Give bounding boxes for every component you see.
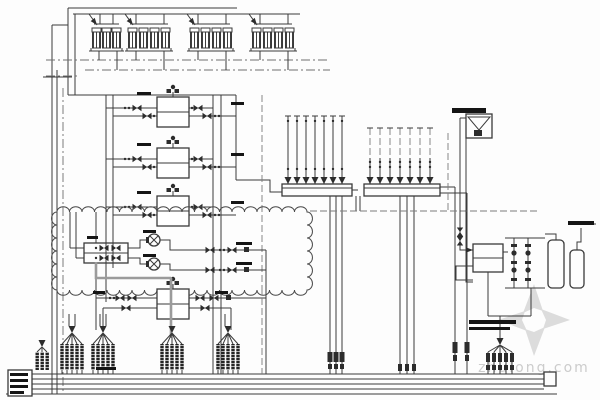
circulation-pumps: [146, 234, 196, 270]
chiller-1: [157, 85, 189, 127]
tank-1: [548, 240, 564, 288]
riser-bundle-3: [160, 326, 183, 374]
chiller-2: [157, 136, 189, 178]
return-manifold: [310, 128, 540, 374]
manifold-risers: [285, 116, 346, 184]
riser-bundle-1: [60, 326, 83, 374]
chiller-4-circuit: [96, 262, 266, 338]
chiller-3: [157, 184, 189, 226]
chilled-water-headers: [68, 95, 282, 374]
plate-heat-exchanger: [70, 240, 148, 264]
cooling-tower-group-3: [187, 14, 235, 70]
supply-manifold: [282, 116, 360, 374]
chiller-4: [157, 277, 189, 319]
hvac-schematic: HVAC chilled / condenser water system sc…: [0, 0, 600, 400]
chillers: [106, 85, 236, 226]
expansion-tank-assembly: [457, 114, 492, 282]
bottom-distribution: [6, 288, 557, 396]
pump-icon: [148, 258, 160, 270]
riser-bundle-2: [91, 326, 114, 374]
cooling-tower-group-4: [249, 14, 297, 70]
riser-bundle-small: [36, 340, 49, 370]
manifold-risers-dashed: [367, 128, 434, 184]
tank-2: [570, 250, 584, 288]
pump-icon: [148, 234, 160, 246]
schematic-canvas: HVAC chilled / condenser water system sc…: [0, 0, 600, 400]
riser-bundle-4: [216, 326, 239, 374]
filter-columns: [503, 238, 545, 288]
cooling-tower-group-2: [125, 14, 173, 70]
